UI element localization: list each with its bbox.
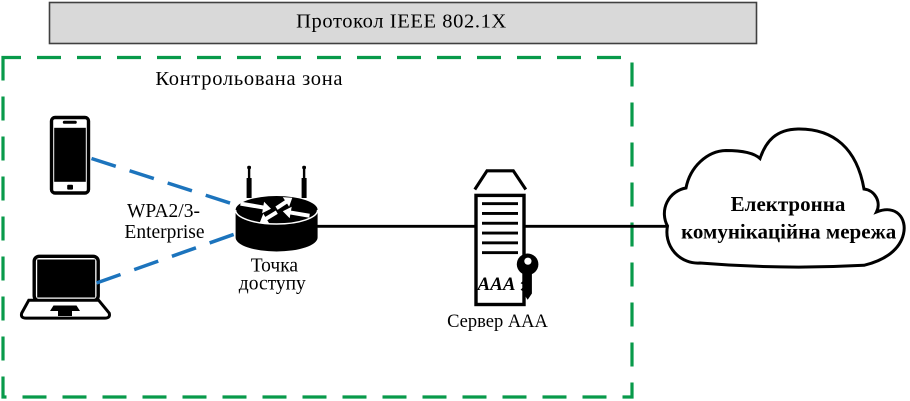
svg-text:комунікаційна мережа: комунікаційна мережа xyxy=(681,220,897,244)
svg-text:WPA2/3-: WPA2/3- xyxy=(127,201,200,222)
svg-text:AAA: AAA xyxy=(477,274,516,295)
svg-text:Контрольована зона: Контрольована зона xyxy=(155,68,343,90)
svg-text:Електронна: Електронна xyxy=(731,192,846,216)
svg-text:Сервер ААА: Сервер ААА xyxy=(447,312,548,332)
svg-text:Enterprise: Enterprise xyxy=(124,222,204,243)
svg-text:доступу: доступу xyxy=(239,273,306,294)
svg-text:Протокол IEEE 802.1X: Протокол IEEE 802.1X xyxy=(296,11,507,33)
